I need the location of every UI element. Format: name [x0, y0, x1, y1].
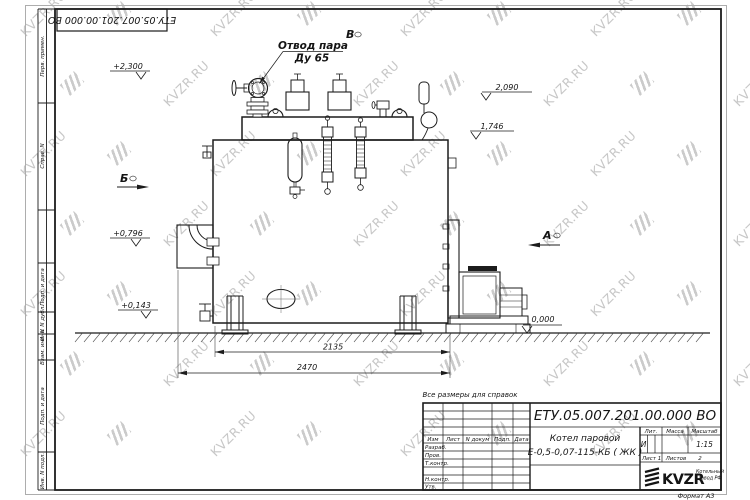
- elevation-label: +0,143: [121, 301, 151, 310]
- elevation-label: 1,746: [481, 122, 504, 131]
- corner-designation: ЕТУ.05.007.201.00.000 ВО: [47, 14, 176, 25]
- tb-col-list: Лист: [445, 437, 461, 443]
- kvzr-logo-icon: [645, 469, 659, 486]
- view-label-right: А: [542, 229, 552, 242]
- tb-scale-value: 1:15: [696, 440, 713, 449]
- fan-assembly: [446, 266, 530, 333]
- margin-label: Перв. примен.: [40, 35, 46, 77]
- tb-row-prov: Пров.: [425, 453, 441, 459]
- view-markers: В Б А: [117, 28, 560, 247]
- drawing-sheet: KVZR.RUKVZR.RUKVZR.RUKVZR.RUKVZR.RUKVZR.…: [0, 0, 750, 500]
- margin-label: Подп. и дата: [40, 268, 46, 306]
- support-leg-right: [395, 296, 421, 334]
- tb-designation: ЕТУ.05.007.201.00.000 ВО: [534, 408, 717, 424]
- water-gauge-glass-2: [355, 118, 366, 191]
- view-label-left: Б: [120, 172, 128, 185]
- drain-valve-bottom-left: [199, 304, 213, 321]
- boiler-drawing-canvas: Перв. примен. Справ. N Подп. и дата Инв.…: [0, 0, 750, 500]
- steam-outlet-valve: [232, 79, 268, 118]
- tb-col-podp: Подп.: [494, 437, 511, 443]
- tb-company-line2: завод РФ: [698, 476, 721, 482]
- fan-motor: [500, 288, 522, 316]
- water-gauge-glass-1: [322, 116, 333, 195]
- tb-row-razrab: Разраб.: [425, 445, 447, 451]
- tb-sheet-label: Лист: [641, 456, 657, 462]
- elevation-label: 0,000: [532, 315, 555, 324]
- left-wall-valve-top: [202, 146, 212, 158]
- tb-sheet-value: 1: [658, 456, 662, 462]
- support-leg-left: [222, 296, 248, 334]
- safety-valve-2: [328, 74, 351, 110]
- elevation-labels: +2,300 2,090 1,746 +0,796 +0,143 0,000: [113, 62, 554, 324]
- tb-sheets-label: Листов: [665, 456, 687, 462]
- pressure-gauge-siphon: [419, 82, 437, 140]
- burner-assembly: [177, 225, 219, 268]
- flue-panel: [443, 158, 459, 318]
- tb-col-izm: Изм: [427, 437, 438, 443]
- tb-company-line1: Котельный: [696, 469, 724, 475]
- callout-line2: Ду 65: [294, 53, 329, 65]
- tb-row-nkontr: Н.контр.: [425, 477, 450, 483]
- drum-small-valve: [372, 101, 389, 117]
- ground-line: [75, 333, 710, 342]
- tb-sheets-value: 2: [698, 456, 702, 462]
- separator-cylinder: [288, 133, 305, 199]
- tb-col-data: Дата: [513, 437, 529, 443]
- tb-product-name: Котел паровой: [550, 434, 621, 444]
- elevation-label: +2,300: [113, 62, 143, 71]
- dim-overall-length: 2470: [297, 363, 317, 372]
- margin-label: Инв. N подл.: [40, 453, 46, 490]
- boiler-body: [213, 117, 448, 334]
- margin-label: Подп. и дата: [40, 387, 46, 425]
- tb-lit-value: И: [641, 440, 647, 449]
- title-block-text: ЕТУ.05.007.201.00.000 ВО Котел паровой Е…: [425, 408, 724, 491]
- tb-row-tkontr: Т.контр.: [425, 461, 449, 467]
- dimension-lines: [178, 270, 450, 378]
- elevation-label: +0,796: [113, 229, 143, 238]
- elevation-label: 2,090: [496, 83, 519, 92]
- reference-note: Все размеры для справок: [423, 391, 519, 399]
- tb-scale-label: Масштаб: [691, 429, 718, 435]
- format-label: Формат А3: [677, 492, 714, 500]
- margin-label: Взам. инв. N: [40, 329, 46, 365]
- callout-line1: Отвод пара: [278, 40, 348, 52]
- tb-row-utv: Утв.: [425, 485, 437, 491]
- tb-lit-label: Лит.: [644, 429, 658, 435]
- steam-outlet-callout: Отвод пара Ду 65: [259, 40, 348, 84]
- tb-product-model: Е-0,5-0,07-115-КБ ( ЖК ): [528, 448, 642, 458]
- tb-col-ndoc: N докум: [466, 437, 490, 443]
- dim-body-length: 2135: [323, 343, 343, 352]
- tb-mass-label: Масса: [666, 429, 684, 435]
- manhole: [262, 285, 300, 313]
- safety-valve-1: [286, 74, 309, 110]
- margin-label: Справ. N: [40, 143, 46, 168]
